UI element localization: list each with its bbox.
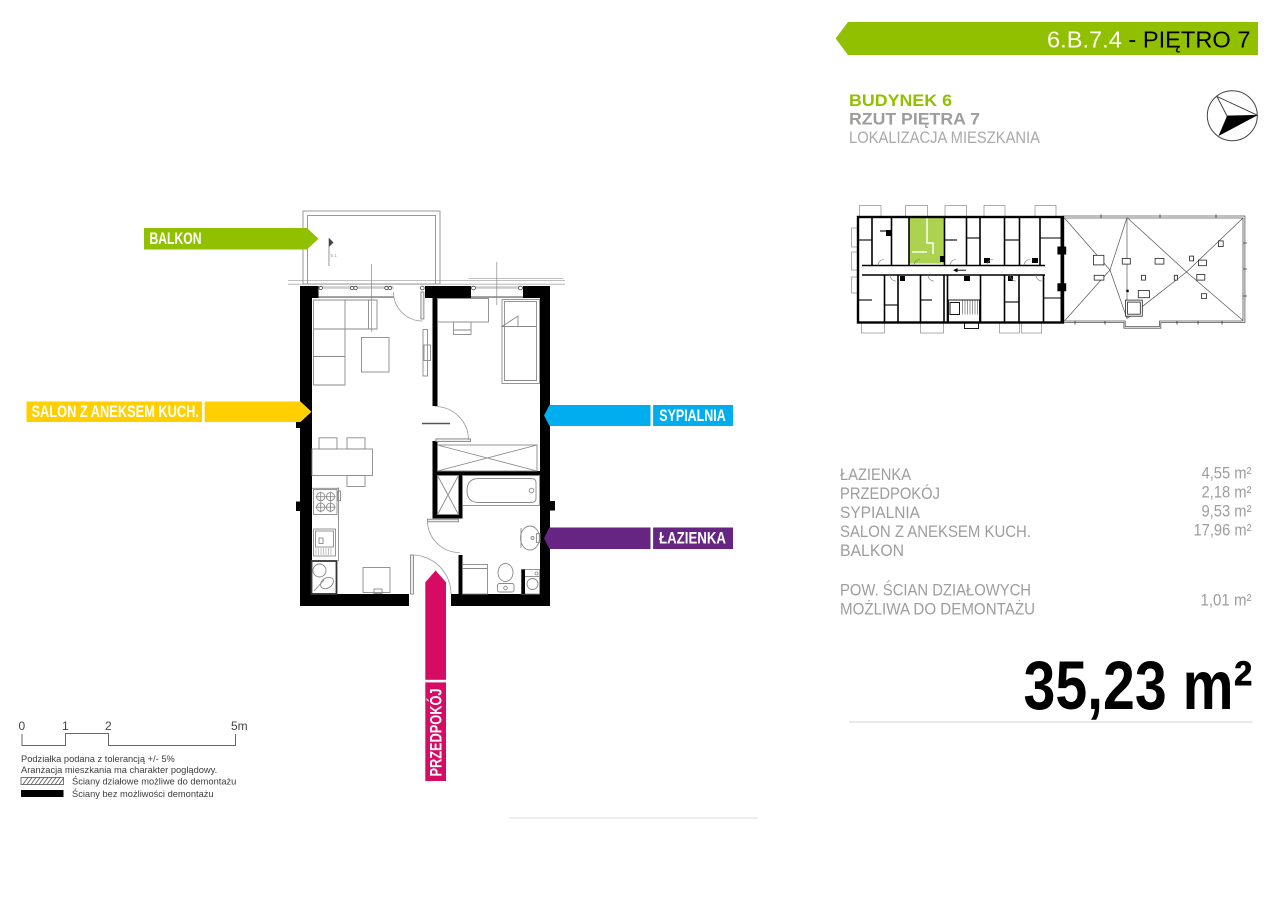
svg-text:POW. ŚCIAN DZIAŁOWYCH: POW. ŚCIAN DZIAŁOWYCH <box>840 581 1031 600</box>
svg-text:5m: 5m <box>231 719 248 733</box>
svg-text:Aranżacja mieszkania ma charak: Aranżacja mieszkania ma charakter pogląd… <box>21 765 217 775</box>
svg-text:SALON Z ANEKSEM KUCH.: SALON Z ANEKSEM KUCH. <box>32 402 200 421</box>
svg-text:4,55 m²: 4,55 m² <box>1202 465 1253 483</box>
svg-text:Ściany działowe możliwe do dem: Ściany działowe możliwe do demontażu <box>72 776 236 787</box>
svg-text:RZUT PIĘTRA 7: RZUT PIĘTRA 7 <box>849 111 980 129</box>
svg-text:5.1: 5.1 <box>331 253 338 258</box>
svg-text:ŁAZIENKA: ŁAZIENKA <box>659 529 726 548</box>
svg-text:PRZEDPOKÓJ: PRZEDPOKÓJ <box>427 689 446 777</box>
svg-text:BALKON: BALKON <box>150 229 202 248</box>
svg-text:MOŻLIWA DO DEMONTAŻU: MOŻLIWA DO DEMONTAŻU <box>840 600 1035 619</box>
svg-text:1: 1 <box>62 719 69 733</box>
svg-text:2: 2 <box>105 719 112 733</box>
svg-text:0: 0 <box>19 719 26 733</box>
svg-text:Ściany bez możliwości demontaż: Ściany bez możliwości demontażu <box>72 788 214 799</box>
svg-text:35,23 m²: 35,23 m² <box>1024 647 1253 724</box>
svg-text:2,18 m²: 2,18 m² <box>1202 484 1253 502</box>
svg-text:ŁAZIENKA: ŁAZIENKA <box>840 466 911 484</box>
svg-text:PRZEDPOKÓJ: PRZEDPOKÓJ <box>840 484 940 503</box>
svg-text:6.B.7.4 - PIĘTRO 7: 6.B.7.4 - PIĘTRO 7 <box>1047 27 1251 53</box>
svg-text:BALKON: BALKON <box>840 542 904 560</box>
svg-text:Podziałka podana z tolerancją: Podziałka podana z tolerancją +/- 5% <box>21 754 175 764</box>
svg-text:9,53 m²: 9,53 m² <box>1202 503 1253 521</box>
svg-text:BUDYNEK 6: BUDYNEK 6 <box>849 92 952 110</box>
svg-text:SALON Z ANEKSEM KUCH.: SALON Z ANEKSEM KUCH. <box>840 523 1031 541</box>
svg-text:SYPIALNIA: SYPIALNIA <box>659 406 726 425</box>
svg-text:1,01 m²: 1,01 m² <box>1201 592 1253 610</box>
svg-text:17,96 m²: 17,96 m² <box>1194 522 1253 540</box>
svg-text:LOKALIZACJA MIESZKANIA: LOKALIZACJA MIESZKANIA <box>849 129 1040 147</box>
svg-text:SYPIALNIA: SYPIALNIA <box>840 504 920 522</box>
